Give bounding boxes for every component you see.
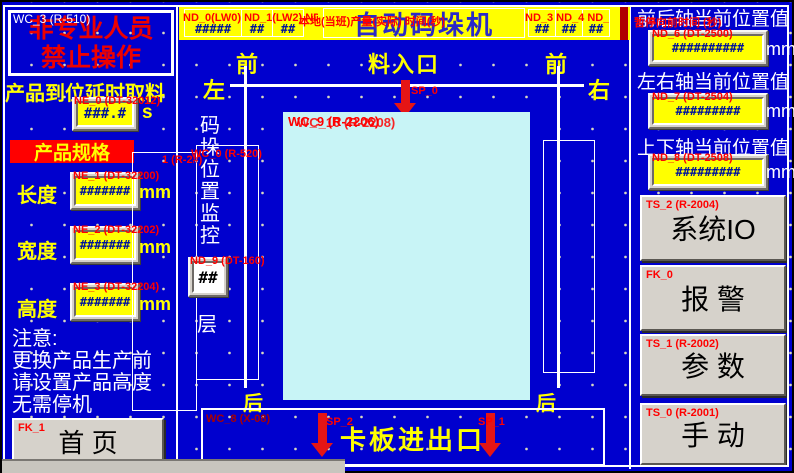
params-button-tag: TS_1 (R-2002) [646,338,719,350]
home-button-tag: FK_1 [18,422,45,434]
axis2-title: 左右轴当前位置值 [637,67,789,94]
manual-button[interactable]: TS_0 (R-2001) 手 动 [640,403,786,465]
axis3-value-tag: ND_8 (DT-2508) [652,152,733,164]
spec-width-label: 宽度 [17,235,57,264]
spec-height-label: 高度 [17,293,57,322]
alarm-button[interactable]: FK_0 报 警 [640,265,786,331]
left-side-label: 左 [203,73,225,105]
spec-width-tag: NE_2 (DT-32202) [73,224,159,236]
banner-red-stripe [620,6,628,40]
right-column-outline [543,140,595,373]
axis2-unit: mm [766,101,794,122]
feed-inlet-label: 料入口 [368,47,440,79]
right-side-label: 右 [588,73,610,105]
pallet-tag-b: WC_10 (R-2208) [297,117,395,129]
note-line-4: 无需停机 [12,394,92,416]
alarm-button-label: 报 警 [681,278,745,318]
warning-line2: 禁止操作 [11,44,171,72]
note-line-2: 更换产品生产前 [12,350,152,372]
outlet-arrow-right-tag: SP_1 [478,416,505,428]
axis1-unit: mm [766,39,794,60]
layer-count-tag: ND_9 (DT-160) [190,255,265,267]
bottom-gray-strip [2,459,345,473]
axis3-unit: mm [766,162,794,183]
axis2-value-tag: ND_7 (DT-2504) [652,91,733,103]
title-tag-overlay: 本地(当班)产量(实际) 时间(秒) [299,16,445,28]
system-io-button[interactable]: TS_2 (R-2004) 系统IO [640,195,786,261]
feed-arrow-tag: SP_0 [411,85,438,97]
note-line-1: 注意: [12,328,58,350]
pallet-area [283,112,530,400]
front-left-label: 前 [236,47,258,79]
front-right-label: 前 [545,47,567,79]
spec-height-tag: NE_3 (DT-32204) [73,281,159,293]
home-button-label: 首 页 [58,423,117,460]
warning-tag: WC_3 (R-510) [13,13,90,25]
axis1-value-tag: ND_6 (DT-2500) [652,28,733,40]
outlet-label: 卡板进出口 [340,420,485,457]
params-button-label: 参 数 [681,345,745,385]
alarm-button-tag: FK_0 [646,269,673,281]
spec-length-label: 长度 [17,179,57,208]
home-button[interactable]: FK_1 首 页 [12,418,164,464]
hmi-screen: ##### ## ## ND_0(LW0) ND_1(LW2) ND_2(LW4… [0,0,794,473]
outlet-arrow-left-tag: SP_2 [326,416,353,428]
system-io-button-tag: TS_2 (R-2004) [646,199,719,211]
spec-length-tag: NE_1 (DT-32200) [73,170,159,182]
monitor-tag-b: 1 (R-2#) [162,154,202,166]
top-banner: ##### ## ## ND_0(LW0) ND_1(LW2) ND_2(LW4… [179,6,630,40]
time-tag-overlay: ND_3 ND_4 ND_5 (LW6) [525,12,609,24]
system-io-button-label: 系统IO [670,208,756,248]
manual-button-tag: TS_0 (R-2001) [646,407,719,419]
note-line-3: 请设置产品高度 [12,372,152,394]
monitor-vertical-label: 码垛位置监控 [198,115,222,247]
spec-header-label: 产品规格 [34,138,110,165]
date-tag-overlay: ND_0(LW0) ND_1(LW2) ND_2(LW4) [183,12,318,24]
outlet-tag: WC_8 (X-08) [206,413,270,425]
right-divider [629,5,631,469]
manual-button-label: 手 动 [681,414,745,454]
spec-header-bar: 产品规格 [10,140,134,163]
delay-value-tag: NE_0 (DT-32012) [74,95,160,107]
layer-label: 层 [197,308,217,337]
params-button[interactable]: TS_1 (R-2002) 参 数 [640,334,786,396]
